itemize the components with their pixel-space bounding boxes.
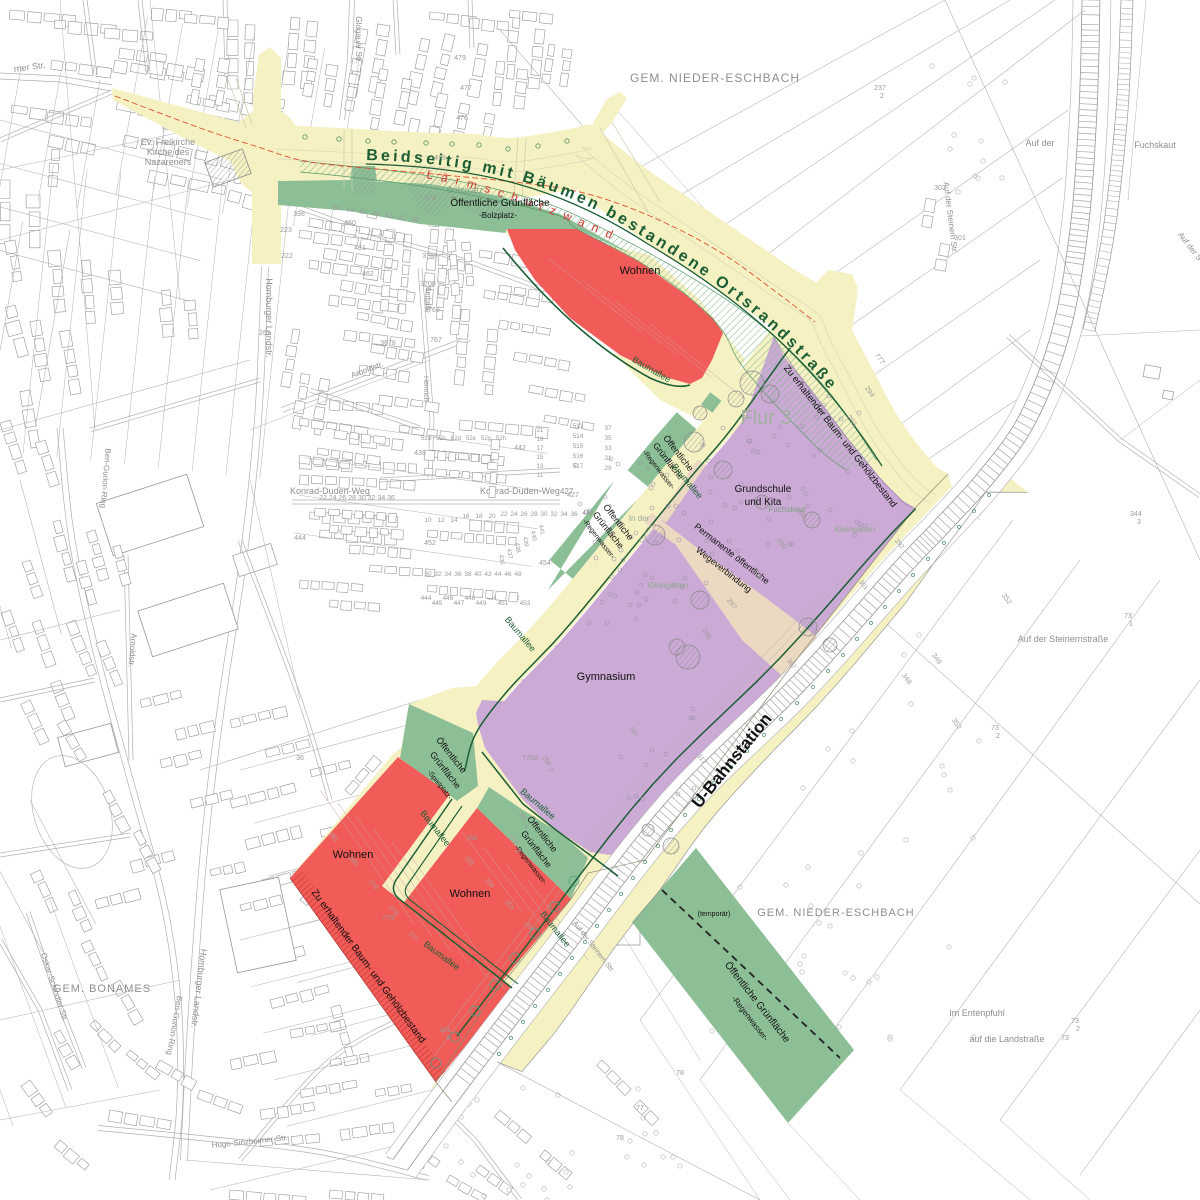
svg-text:22: 22 — [500, 511, 508, 518]
svg-text:30: 30 — [424, 571, 432, 578]
svg-text:454: 454 — [539, 560, 551, 567]
svg-text:3678: 3678 — [380, 340, 396, 347]
svg-text:18: 18 — [475, 513, 483, 520]
svg-text:442: 442 — [514, 445, 526, 452]
svg-text:301: 301 — [954, 235, 966, 242]
svg-text:513: 513 — [573, 423, 584, 430]
svg-text:52d: 52d — [451, 436, 461, 442]
svg-text:779: 779 — [382, 915, 394, 922]
svg-text:51: 51 — [333, 205, 341, 212]
svg-text:460: 460 — [344, 220, 356, 227]
svg-text:Heinrich-: Heinrich- — [422, 376, 429, 405]
svg-text:7769: 7769 — [522, 755, 538, 762]
svg-text:261: 261 — [259, 330, 271, 337]
svg-text:(temporär): (temporär) — [698, 911, 731, 918]
svg-text:453: 453 — [520, 600, 531, 607]
svg-text:302: 302 — [934, 185, 946, 192]
svg-text:Im Entenpfuhl: Im Entenpfuhl — [949, 1008, 1005, 1018]
svg-text:26: 26 — [520, 511, 528, 518]
svg-text:438: 438 — [414, 450, 426, 457]
svg-text:GEM. NIEDER-ESCHBACH: GEM. NIEDER-ESCHBACH — [630, 71, 800, 85]
svg-text:19: 19 — [537, 437, 544, 443]
svg-text:35: 35 — [604, 435, 612, 442]
svg-text:3769: 3769 — [422, 253, 438, 260]
svg-text:Nazareners: Nazareners — [145, 157, 192, 167]
svg-text:auf die Landstraße: auf die Landstraße — [969, 1034, 1044, 1044]
svg-text:31: 31 — [604, 455, 612, 462]
svg-text:101: 101 — [439, 1027, 451, 1034]
svg-text:45: 45 — [372, 211, 380, 218]
svg-text:Wohnen: Wohnen — [450, 888, 491, 900]
svg-text:Glogauer Str.: Glogauer Str. — [354, 16, 363, 63]
svg-text:Auf der: Auf der — [1025, 138, 1054, 148]
svg-text:11: 11 — [537, 473, 544, 479]
svg-text:52g: 52g — [481, 436, 491, 442]
svg-text:42: 42 — [484, 571, 492, 578]
svg-text:43: 43 — [385, 213, 393, 220]
svg-text:237: 237 — [874, 85, 886, 92]
svg-text:222: 222 — [281, 253, 293, 260]
svg-text:Gymnasium: Gymnasium — [577, 671, 636, 683]
svg-text:48: 48 — [514, 571, 522, 578]
svg-text:34: 34 — [560, 511, 568, 518]
svg-text:Fuchskaut: Fuchskaut — [1134, 140, 1176, 150]
svg-text:24: 24 — [510, 511, 518, 518]
svg-text:In der: In der — [629, 514, 650, 523]
svg-text:44: 44 — [494, 571, 502, 578]
svg-text:46: 46 — [504, 571, 512, 578]
svg-text:32: 32 — [550, 511, 558, 518]
svg-text:Flur 3: Flur 3 — [740, 407, 791, 429]
svg-text:Homburger Landstr.: Homburger Landstr. — [264, 278, 274, 358]
svg-text:462: 462 — [362, 271, 374, 278]
svg-text:Kirche des: Kirche des — [147, 147, 190, 157]
svg-text:446: 446 — [443, 595, 454, 602]
svg-text:38: 38 — [464, 571, 472, 578]
svg-text:73: 73 — [1071, 1018, 1079, 1025]
svg-text:Wohnen: Wohnen — [620, 265, 661, 277]
svg-text:36: 36 — [570, 511, 578, 518]
svg-text:40: 40 — [474, 571, 482, 578]
svg-text:34: 34 — [444, 571, 452, 578]
svg-text:14: 14 — [450, 517, 458, 524]
svg-text:398: 398 — [293, 211, 305, 218]
svg-text:445: 445 — [432, 600, 443, 607]
svg-text:33: 33 — [604, 445, 612, 452]
svg-text:79: 79 — [744, 1005, 752, 1012]
svg-text:16: 16 — [462, 513, 470, 520]
svg-text:479: 479 — [454, 55, 466, 62]
svg-text:516: 516 — [573, 453, 584, 460]
svg-text:444: 444 — [294, 535, 306, 542]
svg-text:447: 447 — [454, 600, 465, 607]
svg-text:442: 442 — [582, 510, 594, 517]
svg-text:73: 73 — [1124, 613, 1132, 620]
svg-text:515: 515 — [573, 443, 584, 450]
svg-text:73: 73 — [991, 725, 999, 732]
svg-text:77: 77 — [636, 1105, 644, 1112]
svg-text:36: 36 — [454, 571, 462, 578]
svg-text:39: 39 — [411, 217, 419, 224]
svg-text:20: 20 — [488, 513, 496, 520]
svg-text:17: 17 — [537, 446, 544, 452]
svg-text:449: 449 — [476, 600, 487, 607]
svg-text:476: 476 — [456, 115, 468, 122]
svg-text:517: 517 — [573, 463, 584, 470]
svg-text:41: 41 — [398, 215, 406, 222]
svg-text:47: 47 — [359, 209, 367, 216]
svg-text:514: 514 — [573, 433, 584, 440]
svg-text:-Bolzplatz-: -Bolzplatz- — [479, 211, 517, 220]
svg-text:259: 259 — [467, 835, 478, 842]
svg-text:444: 444 — [421, 595, 432, 602]
svg-text:1: 1 — [1129, 621, 1133, 628]
svg-text:21: 21 — [537, 428, 544, 434]
svg-text:223: 223 — [280, 227, 292, 234]
svg-text:9: 9 — [446, 1035, 450, 1042]
svg-text:474: 474 — [424, 195, 436, 202]
svg-text:15: 15 — [537, 455, 544, 461]
svg-text:Öffentliche Grünfläche: Öffentliche Grünfläche — [450, 197, 550, 209]
svg-text:3708: 3708 — [420, 281, 436, 288]
svg-text:Bolzplatz: Bolzplatz — [447, 185, 484, 195]
svg-text:37: 37 — [604, 425, 612, 432]
svg-text:Ev. Freikirche: Ev. Freikirche — [141, 137, 195, 147]
svg-text:52c: 52c — [436, 436, 446, 442]
svg-text:49: 49 — [346, 207, 354, 214]
svg-text:475: 475 — [434, 155, 446, 162]
svg-text:344: 344 — [1130, 511, 1142, 518]
svg-text:22 24 26 28 30 32 34 36: 22 24 26 28 30 32 34 36 — [319, 495, 395, 502]
svg-text:30: 30 — [540, 511, 548, 518]
svg-text:78: 78 — [616, 1135, 624, 1142]
svg-text:28: 28 — [530, 511, 538, 518]
svg-text:427: 427 — [567, 492, 579, 499]
svg-text:2: 2 — [880, 93, 884, 100]
svg-text:GEM. NIEDER-ESCHBACH: GEM. NIEDER-ESCHBACH — [757, 907, 915, 919]
svg-text:3: 3 — [1137, 519, 1141, 526]
svg-text:29: 29 — [604, 465, 612, 472]
svg-text:78: 78 — [676, 1070, 684, 1077]
svg-text:2: 2 — [1076, 1026, 1080, 1033]
svg-text:2: 2 — [996, 733, 1000, 740]
svg-text:73: 73 — [1061, 1035, 1069, 1042]
svg-text:36: 36 — [296, 755, 304, 762]
svg-text:10: 10 — [424, 517, 432, 524]
svg-text:Kleingärten: Kleingärten — [648, 581, 688, 590]
svg-text:Auf der Steinernstraße: Auf der Steinernstraße — [1018, 634, 1109, 644]
svg-text:13: 13 — [537, 464, 544, 470]
svg-text:32: 32 — [434, 571, 442, 578]
svg-text:477: 477 — [460, 85, 472, 92]
svg-text:52a: 52a — [421, 436, 432, 442]
svg-text:3768: 3768 — [424, 307, 440, 314]
svg-text:461: 461 — [354, 245, 366, 252]
svg-text:52e: 52e — [466, 436, 477, 442]
svg-text:Kleingärten: Kleingärten — [835, 525, 875, 534]
svg-text:767: 767 — [430, 337, 442, 344]
svg-text:451: 451 — [498, 600, 509, 607]
svg-text:452: 452 — [424, 540, 436, 547]
svg-text:12: 12 — [437, 517, 445, 524]
svg-text:GEM. BONAMES: GEM. BONAMES — [53, 983, 151, 995]
svg-text:Grundschule: Grundschule — [735, 484, 792, 495]
